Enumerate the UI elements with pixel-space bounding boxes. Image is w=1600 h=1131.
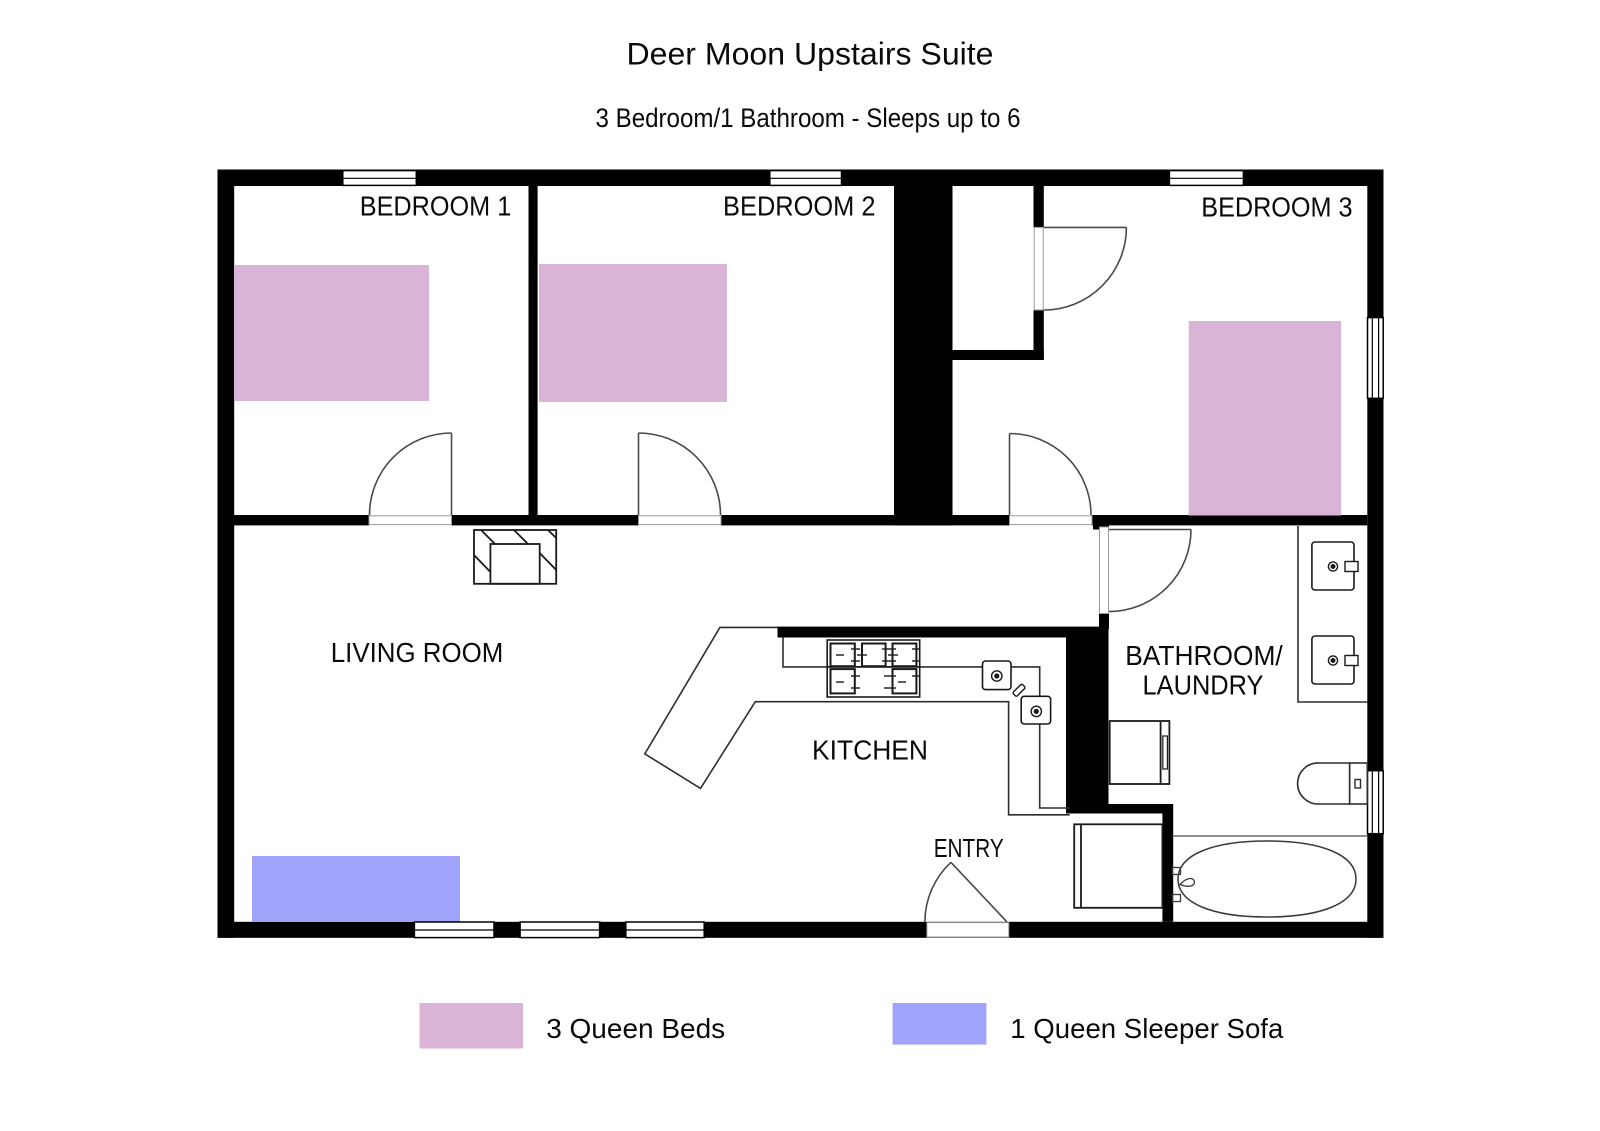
svg-text:Deer Moon Upstairs Suite: Deer Moon Upstairs Suite bbox=[627, 36, 994, 72]
svg-text:ENTRY: ENTRY bbox=[934, 833, 1004, 863]
svg-text:LAUNDRY: LAUNDRY bbox=[1143, 670, 1264, 701]
svg-text:3 Bedroom/1 Bathroom - Sleeps: 3 Bedroom/1 Bathroom - Sleeps up to 6 bbox=[596, 103, 1021, 133]
svg-text:LIVING ROOM: LIVING ROOM bbox=[331, 637, 504, 668]
svg-text:BEDROOM 2: BEDROOM 2 bbox=[723, 191, 876, 222]
svg-text:BEDROOM 3: BEDROOM 3 bbox=[1201, 192, 1352, 223]
svg-text:1 Queen Sleeper Sofa: 1 Queen Sleeper Sofa bbox=[1010, 1013, 1283, 1044]
svg-text:3 Queen Beds: 3 Queen Beds bbox=[546, 1013, 725, 1044]
svg-text:KITCHEN: KITCHEN bbox=[812, 735, 928, 766]
svg-text:BEDROOM 1: BEDROOM 1 bbox=[360, 191, 512, 222]
svg-text:BATHROOM/: BATHROOM/ bbox=[1125, 640, 1283, 671]
